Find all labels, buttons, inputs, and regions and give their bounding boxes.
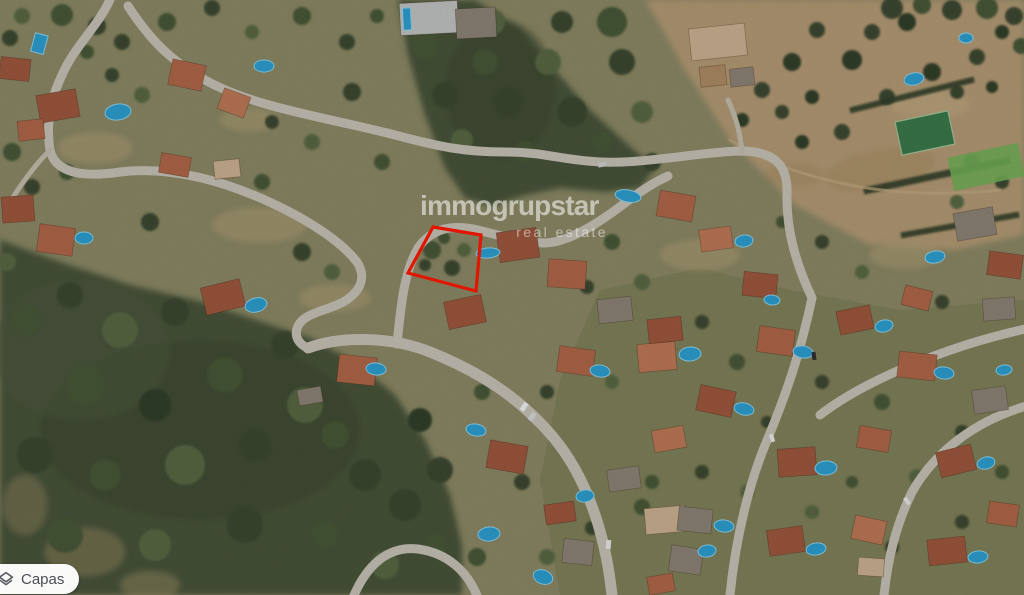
- satellite-imagery[interactable]: [0, 0, 1024, 595]
- map-viewport[interactable]: immogrupstar real estate Capas: [0, 0, 1024, 595]
- layers-button-label: Capas: [21, 571, 64, 588]
- layers-icon: [0, 571, 14, 587]
- photo-grain: [0, 0, 1024, 595]
- layers-button[interactable]: Capas: [0, 564, 79, 594]
